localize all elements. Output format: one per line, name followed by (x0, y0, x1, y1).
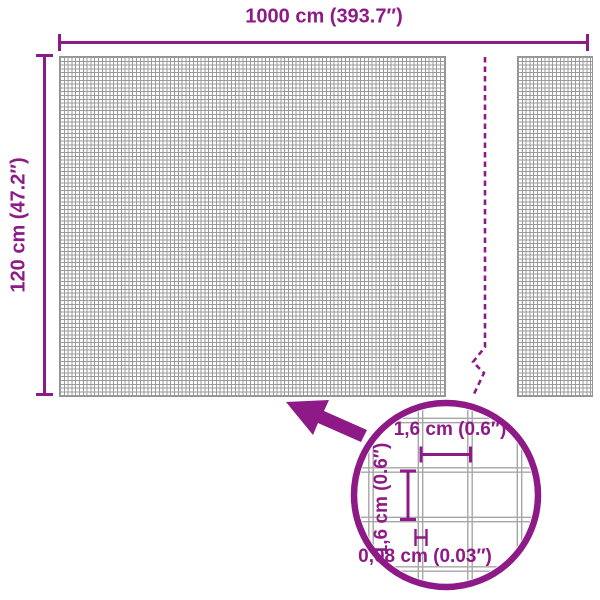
diagram-overlay (0, 0, 600, 600)
mesh-width-label: 1,6 cm (0.6″) (394, 419, 507, 441)
product-dimension-diagram: 1000 cm (393.7″) 120 cm (47.2″) (0, 0, 600, 600)
mesh-height-label: 1,6 cm (0.6″) (371, 443, 393, 556)
break-line (473, 57, 485, 396)
wire-thickness-label: 0,08 cm (0.03″) (358, 546, 492, 568)
zoom-arrow-icon (286, 400, 367, 442)
